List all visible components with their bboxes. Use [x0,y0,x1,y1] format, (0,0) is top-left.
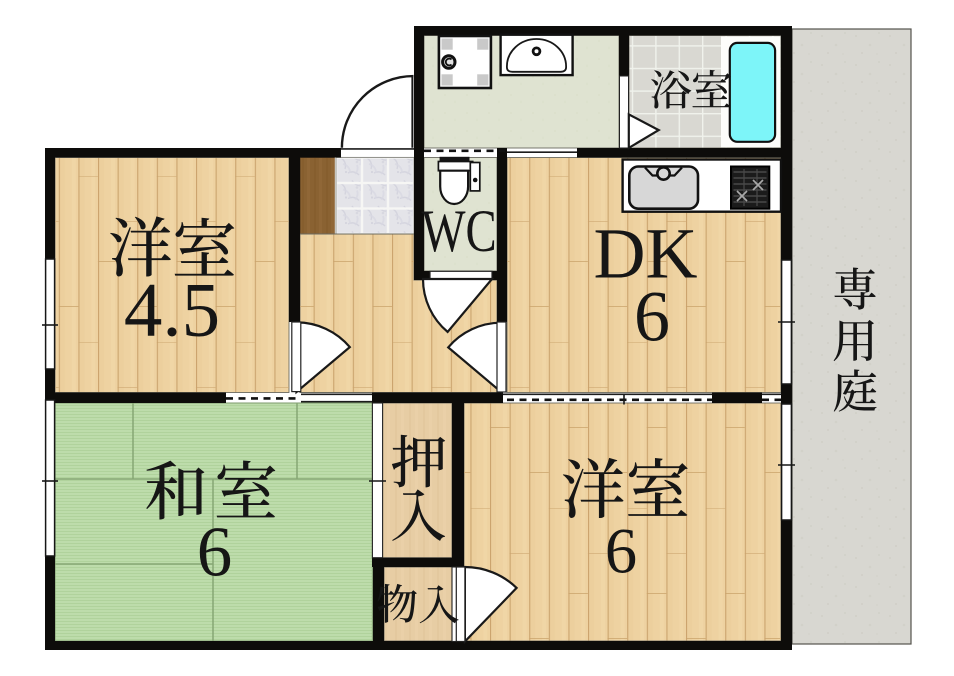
svg-text:6: 6 [634,277,670,357]
svg-text:WC: WC [421,197,496,264]
svg-text:6: 6 [197,514,233,592]
svg-text:4.5: 4.5 [124,266,220,352]
svg-text:6: 6 [605,516,637,587]
